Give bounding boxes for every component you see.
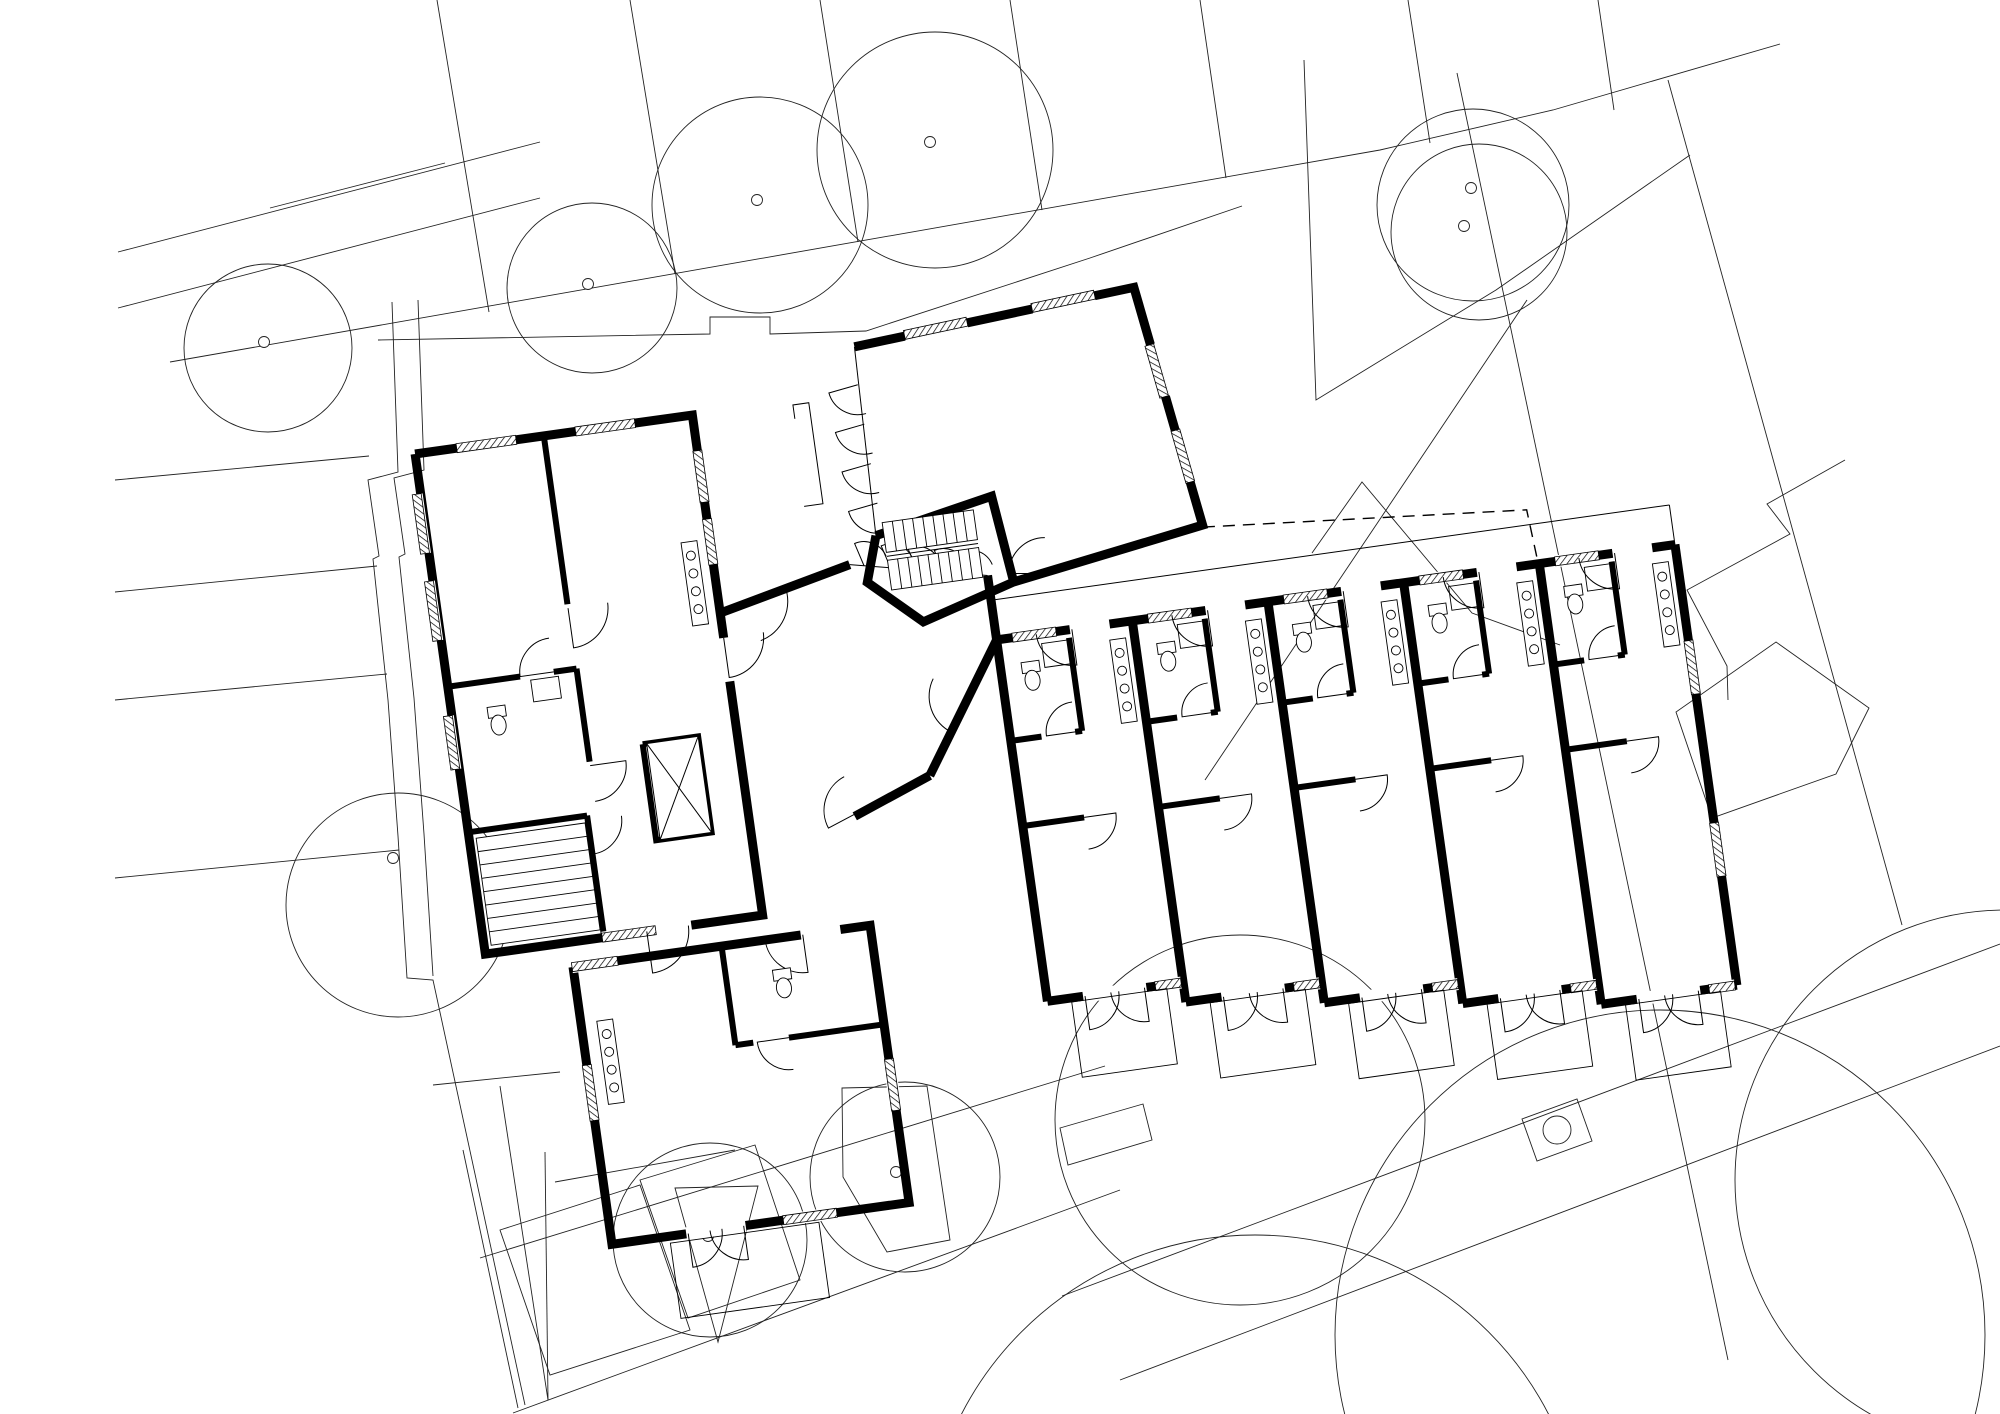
tree-trunk-marker xyxy=(583,279,594,290)
site-plan-drawing xyxy=(0,0,2000,1414)
windows xyxy=(396,213,1758,1264)
site-context xyxy=(115,0,2000,1413)
toilet-fixture xyxy=(1564,584,1586,615)
building-floor-plan xyxy=(396,213,1769,1340)
window-with-sill-hatch xyxy=(883,1058,902,1111)
kitchen-counter xyxy=(681,541,709,626)
window-with-sill-hatch xyxy=(1708,822,1727,877)
door-swing-arc xyxy=(590,761,631,802)
toilet-fixture xyxy=(772,968,794,999)
tree-trunk-marker xyxy=(259,337,270,348)
window-with-sill-hatch xyxy=(701,518,719,565)
utility-well-circle xyxy=(1543,1116,1571,1144)
tree-trunk-marker xyxy=(752,195,763,206)
tree-trunk-marker xyxy=(1466,183,1477,194)
window-with-sill-hatch xyxy=(571,955,618,973)
door-swing-arc xyxy=(568,603,613,648)
window-with-sill-hatch xyxy=(1554,549,1599,567)
tree-trunk-marker xyxy=(388,853,399,864)
tree-canopy-circle xyxy=(184,264,352,432)
door-swing-arc xyxy=(1220,794,1256,830)
tree-canopy-circle xyxy=(817,32,1053,268)
window-with-sill-hatch xyxy=(1283,587,1328,605)
door-swing-arc xyxy=(819,775,863,829)
tree-canopy-circle xyxy=(1335,1010,1985,1414)
tree-trunk-marker xyxy=(925,137,936,148)
window-with-sill-hatch xyxy=(1144,343,1170,398)
door-swing-arc xyxy=(1084,813,1120,849)
toilet-fixture xyxy=(487,705,509,736)
window-with-sill-hatch xyxy=(575,417,636,437)
floor-plan-page xyxy=(0,0,2000,1414)
window-with-sill-hatch xyxy=(1419,568,1464,586)
window-with-sill-hatch xyxy=(1682,640,1701,695)
door-swing-arc xyxy=(1627,737,1663,773)
window-with-sill-hatch xyxy=(581,1064,601,1121)
window-with-sill-hatch xyxy=(456,434,517,454)
garden-beds-and-paths xyxy=(500,642,1869,1375)
window-with-sill-hatch xyxy=(1031,289,1096,314)
toilet-fixture xyxy=(1428,603,1450,634)
door-swing-arc xyxy=(1355,775,1391,811)
kitchen-counter xyxy=(597,1019,625,1104)
door-swing-arc xyxy=(1491,756,1527,792)
window-with-sill-hatch xyxy=(1012,626,1057,644)
parcel-boundary-lines xyxy=(115,0,2000,1413)
window-with-sill-hatch xyxy=(1147,607,1192,625)
door-swing-arc xyxy=(841,463,879,497)
toilet-fixture xyxy=(1292,622,1314,653)
toilet-fixture xyxy=(1021,660,1043,691)
tree-canopy-circle xyxy=(1735,910,2000,1414)
window-with-sill-hatch xyxy=(691,450,710,503)
tree-trunk-marker xyxy=(1459,221,1470,232)
tree-canopy-circle xyxy=(925,1235,1585,1414)
tree-canopy-circle xyxy=(1377,109,1569,301)
window-with-sill-hatch xyxy=(903,316,968,341)
tree-canopy-circle xyxy=(1391,144,1567,320)
window-with-sill-hatch xyxy=(1170,429,1196,484)
fixtures xyxy=(468,407,1722,1113)
toilet-fixture xyxy=(1157,641,1179,672)
